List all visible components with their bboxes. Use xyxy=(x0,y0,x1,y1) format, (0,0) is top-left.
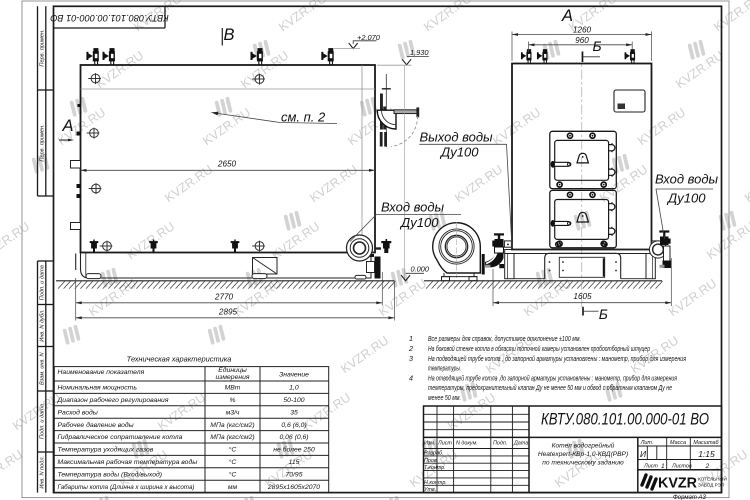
svg-text:Т.контр.: Т.контр. xyxy=(424,465,446,471)
svg-text:Единицы: Единицы xyxy=(218,366,246,374)
svg-text:Масштаб: Масштаб xyxy=(693,440,719,446)
svg-text:°С: °С xyxy=(229,458,237,466)
svg-text:менее 50 мм.: менее 50 мм. xyxy=(428,393,461,402)
svg-text:Максимальная рабочая температу: Максимальная рабочая температура воды xyxy=(58,458,198,466)
svg-text:И: И xyxy=(640,449,647,459)
svg-text:Б: Б xyxy=(599,306,608,322)
svg-text:Пров.: Пров. xyxy=(424,458,438,464)
svg-text:KVZR.RU: KVZR.RU xyxy=(93,48,146,91)
svg-text:Перв. примен.: Перв. примен. xyxy=(40,29,46,66)
svg-text:960: 960 xyxy=(575,36,589,45)
svg-text:Перв. примен.: Перв. примен. xyxy=(40,124,46,161)
svg-text:Инв. N дубл.: Инв. N дубл. xyxy=(40,309,46,341)
svg-text:мм: мм xyxy=(228,484,238,491)
svg-text:Значение: Значение xyxy=(279,372,309,379)
svg-text:Диапазон рабочего регулировани: Диапазон рабочего регулирования xyxy=(57,396,169,404)
svg-text:KVZR.RU: KVZR.RU xyxy=(10,390,63,433)
svg-text:Масса: Масса xyxy=(670,440,686,446)
svg-text:KVZR.RU: KVZR.RU xyxy=(338,333,391,376)
svg-text:Габариты котла (Длинна х ширин: Габариты котла (Длинна х ширина х высота… xyxy=(58,483,195,491)
svg-text:0.000: 0.000 xyxy=(411,264,430,273)
svg-text:Инв. N подл.: Инв. N подл. xyxy=(40,456,46,489)
svg-text:Температура воды (Вход/выход): Температура воды (Вход/выход) xyxy=(58,470,163,478)
svg-text:Гидравлическое сопративление к: Гидравлическое сопративление котла xyxy=(58,433,183,441)
svg-text:35: 35 xyxy=(290,409,298,416)
svg-text:Дата: Дата xyxy=(513,441,528,447)
svg-text:Расход воды: Расход воды xyxy=(58,408,98,416)
svg-text:КВТУ.080.101.00.000-01 ВО: КВТУ.080.101.00.000-01 ВО xyxy=(50,13,168,23)
svg-text:KVZR.RU: KVZR.RU xyxy=(711,0,750,34)
svg-text:не более 250: не более 250 xyxy=(273,446,315,454)
svg-text:по техническому заданию: по техническому заданию xyxy=(542,459,624,467)
svg-text:KVZR.RU: KVZR.RU xyxy=(452,162,505,205)
svg-text:Котел водогрейный: Котел водогрейный xyxy=(552,442,615,450)
svg-text:3: 3 xyxy=(409,354,413,363)
svg-text:Лит.: Лит. xyxy=(640,440,654,446)
svg-text:Б: Б xyxy=(593,38,602,54)
svg-text:КОТЕЛЬНЫЙ: КОТЕЛЬНЫЙ xyxy=(698,475,727,482)
svg-text:Утв.: Утв. xyxy=(423,487,436,493)
svg-text:%: % xyxy=(229,397,235,404)
svg-text:МВт: МВт xyxy=(225,385,241,392)
svg-text:70/95: 70/95 xyxy=(285,471,302,478)
svg-text:Листов: Листов xyxy=(671,464,692,470)
svg-text:2770: 2770 xyxy=(214,292,234,301)
svg-text:Лист: Лист xyxy=(437,441,452,447)
svg-text:KVZR.RU: KVZR.RU xyxy=(490,105,543,148)
svg-text:Температура уходящих газов: Температура уходящих газов xyxy=(58,446,154,454)
svg-text:Heatexpert-КВр-1,0-КВД(РВР): Heatexpert-КВр-1,0-КВД(РВР) xyxy=(538,451,628,458)
svg-text:2: 2 xyxy=(408,344,413,353)
svg-text:В: В xyxy=(224,26,235,44)
svg-text:KVZR.RU: KVZR.RU xyxy=(0,219,32,262)
svg-text:Взам. инв. N: Взам. инв. N xyxy=(40,351,46,385)
svg-text:50-100: 50-100 xyxy=(283,397,304,404)
svg-text:KVZR.RU: KVZR.RU xyxy=(300,390,353,433)
svg-text:N докум.: N докум. xyxy=(456,441,478,447)
svg-text:KVZR.RU: KVZR.RU xyxy=(421,0,474,34)
svg-text:KVZR.RU: KVZR.RU xyxy=(742,162,750,205)
svg-text:МПа (кгс/см2): МПа (кгс/см2) xyxy=(210,422,254,429)
svg-text:2895х1605х2070: 2895х1605х2070 xyxy=(267,484,320,491)
svg-text:1,0: 1,0 xyxy=(289,385,299,392)
svg-text:Техническая характеристика: Техническая характеристика xyxy=(127,355,232,364)
svg-text:Вход воды: Вход воды xyxy=(381,200,445,215)
svg-text:KVZR: KVZR xyxy=(658,475,697,492)
svg-text:KVZR.RU: KVZR.RU xyxy=(124,219,177,262)
svg-text:1260: 1260 xyxy=(573,26,592,35)
svg-text:м3/ч: м3/ч xyxy=(226,409,240,416)
svg-text:1,930: 1,930 xyxy=(410,48,429,57)
svg-text:1: 1 xyxy=(661,463,665,470)
svg-text:Ду100: Ду100 xyxy=(399,215,439,230)
svg-text:Формат А3: Формат А3 xyxy=(673,495,706,500)
svg-text:1:15: 1:15 xyxy=(698,449,715,459)
svg-text:Подп.: Подп. xyxy=(493,441,507,447)
svg-text:KVZR.RU: KVZR.RU xyxy=(276,0,329,34)
svg-text:Подп. и дата: Подп. и дата xyxy=(40,265,46,300)
svg-text:1605: 1605 xyxy=(573,292,592,301)
svg-text:°С: °С xyxy=(229,470,237,478)
svg-text:На отводящей трубе котла ,до з: На отводящей трубе котла ,до запорной ар… xyxy=(428,373,677,382)
svg-text:Лист: Лист xyxy=(643,464,658,470)
svg-text:°С: °С xyxy=(229,446,237,454)
svg-text:температуры, предохранительный: температуры, предохранительный клапан Ду… xyxy=(428,383,672,392)
svg-text:На боковой стенке котла в обла: На боковой стенке котла в области топочн… xyxy=(428,344,650,353)
svg-text:Номинальная мощность: Номинальная мощность xyxy=(58,385,138,392)
svg-text:KVZR.RU: KVZR.RU xyxy=(307,162,360,205)
svg-text:2650: 2650 xyxy=(217,160,237,169)
svg-text:KVZR.RU: KVZR.RU xyxy=(666,276,719,319)
svg-text:Ду100: Ду100 xyxy=(666,191,706,206)
svg-text:Вход воды: Вход воды xyxy=(655,172,719,187)
svg-text:измерения: измерения xyxy=(215,374,249,381)
svg-text:А: А xyxy=(561,7,573,25)
svg-text:KVZR.RU: KVZR.RU xyxy=(162,162,215,205)
svg-text:Наименование показателя: Наименование показателя xyxy=(58,369,145,376)
svg-text:Выход воды: Выход воды xyxy=(420,130,494,145)
svg-text:Подп. и дата: Подп. и дата xyxy=(40,404,46,439)
svg-text:2: 2 xyxy=(705,463,710,470)
svg-text:1: 1 xyxy=(409,334,413,343)
svg-text:115: 115 xyxy=(289,459,300,466)
svg-text:2895: 2895 xyxy=(218,307,238,316)
svg-text:А: А xyxy=(62,117,74,135)
svg-text:На подводящей трубе котла , д: На подводящей трубе котла , до запорной … xyxy=(428,354,686,363)
svg-text:КВТУ.080.101.00.000-01 ВО: КВТУ.080.101.00.000-01 ВО xyxy=(541,410,709,429)
svg-text:МПа (кгс/см2): МПа (кгс/см2) xyxy=(210,434,254,441)
svg-text:Н.контр.: Н.контр. xyxy=(424,480,447,486)
svg-text:Ду100: Ду100 xyxy=(439,145,479,160)
svg-text:4: 4 xyxy=(409,373,413,382)
svg-text:температуры.: температуры. xyxy=(428,364,461,373)
svg-text:Разраб.: Разраб. xyxy=(424,451,444,457)
svg-text:ЗАВОД РЭП: ЗАВОД РЭП xyxy=(698,483,724,488)
svg-text:0,06 (0,6): 0,06 (0,6) xyxy=(279,434,308,441)
svg-text:0,6 (6,0): 0,6 (6,0) xyxy=(281,422,306,429)
svg-text:Все размеры для справок, допус: Все размеры для справок, допустимое откл… xyxy=(428,334,581,343)
svg-text:Рабочее давление воды: Рабочее давление воды xyxy=(58,421,134,429)
svg-text:KVZR.RU: KVZR.RU xyxy=(0,447,25,490)
svg-text:Изм.: Изм. xyxy=(424,441,436,447)
